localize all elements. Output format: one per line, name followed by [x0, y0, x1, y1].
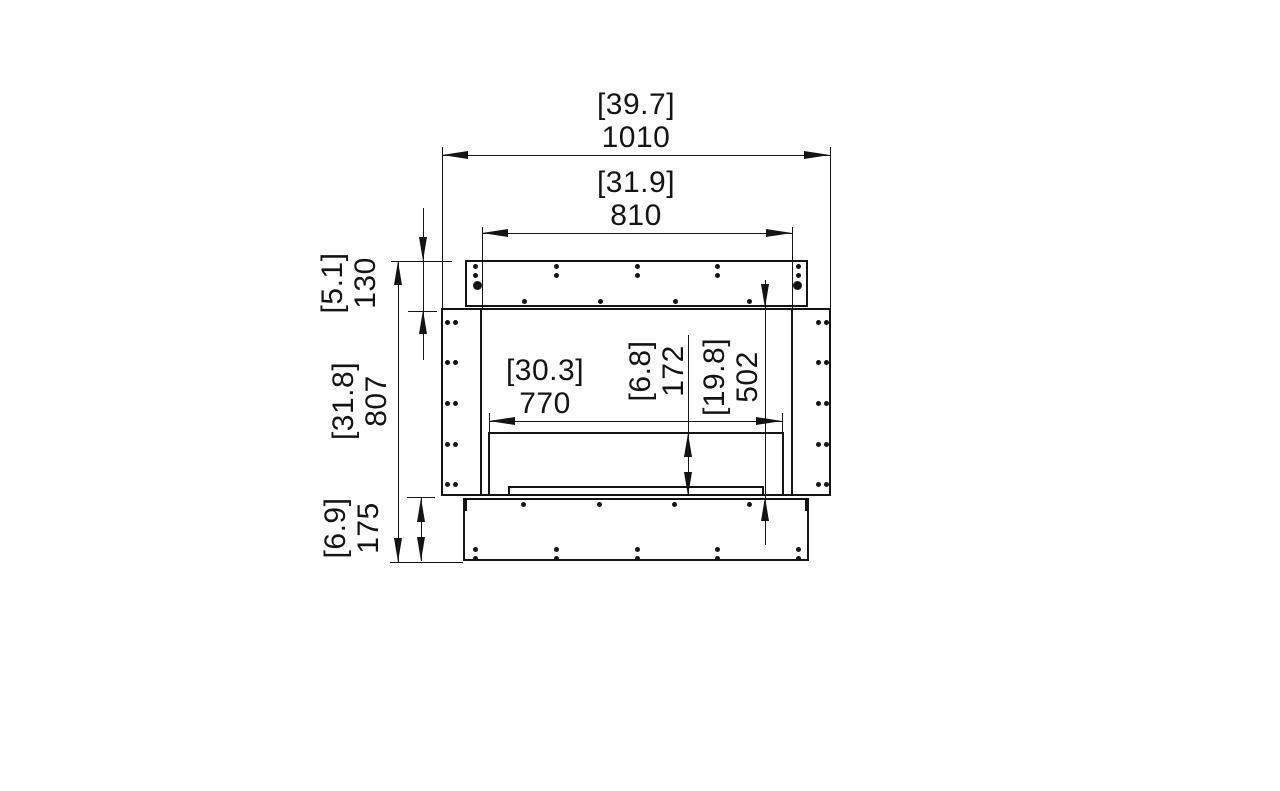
flange-corner-step — [805, 498, 808, 511]
flange-corner-step — [464, 498, 467, 511]
screw-hole-dot — [635, 264, 640, 269]
screw-hole-dot — [445, 401, 450, 406]
dim-overall-height-in: [31.8] — [327, 346, 360, 456]
screw-hole-dot — [445, 360, 450, 365]
dim-label-opening-height: [6.8] 172 — [624, 316, 690, 426]
dim-body-height-in: [19.8] — [698, 322, 731, 432]
screw-hole-dot — [473, 281, 482, 290]
screw-hole-dot — [824, 442, 829, 447]
screw-hole-dot — [554, 547, 559, 552]
dim-opening-width-in: [30.3] — [445, 354, 645, 387]
screw-hole-dot — [816, 482, 821, 487]
dim-label-overall-width: [39.7] 1010 — [536, 88, 736, 154]
screw-hole-dot — [816, 442, 821, 447]
dim-flange-width-mm: 810 — [536, 199, 736, 232]
screw-hole-dot — [635, 547, 640, 552]
screw-hole-dot — [597, 502, 602, 507]
screw-hole-dot — [473, 556, 478, 561]
dim-line-flange-width — [482, 233, 792, 234]
screw-hole-dot — [715, 547, 720, 552]
screw-hole-dot — [824, 320, 829, 325]
dim-bottom-flange-height-in: [6.9] — [319, 473, 352, 583]
dim-body-height-mm: 502 — [731, 322, 764, 432]
screw-hole-dot — [453, 442, 458, 447]
arrowhead — [766, 229, 792, 237]
screw-hole-dot — [453, 401, 458, 406]
extension-line — [792, 227, 793, 308]
arrowhead — [419, 310, 427, 334]
dim-overall-width-in: [39.7] — [536, 88, 736, 121]
screw-hole-dot — [522, 299, 527, 304]
extension-tick — [782, 413, 783, 432]
screw-hole-dot — [796, 547, 801, 552]
arrowhead — [761, 284, 769, 308]
extension-line — [482, 227, 483, 308]
arrowhead — [394, 538, 402, 562]
arrowhead — [417, 537, 425, 561]
arrowhead — [394, 261, 402, 285]
dim-top-flange-height-in: [5.1] — [316, 228, 349, 338]
screw-hole-dot — [824, 360, 829, 365]
arrowhead — [684, 472, 692, 496]
dim-overall-height-mm: 807 — [360, 346, 393, 456]
screw-hole-dot — [445, 320, 450, 325]
right-panel-inner-edge — [791, 309, 793, 496]
extension-tick — [390, 562, 463, 563]
screw-hole-dot — [521, 502, 526, 507]
technical-drawing-canvas: [39.7] 1010 [31.9] 810 [30.3] 770 [5.1] … — [0, 0, 1280, 791]
dim-label-overall-height: [31.8] 807 — [327, 346, 393, 456]
dim-label-flange-width: [31.9] 810 — [536, 166, 736, 232]
arrowhead — [417, 498, 425, 522]
dim-opening-height-mm: 172 — [657, 316, 690, 426]
screw-hole-dot — [453, 360, 458, 365]
dim-flange-width-in: [31.9] — [536, 166, 736, 199]
screw-hole-dot — [473, 547, 478, 552]
screw-hole-dot — [796, 264, 801, 269]
screw-hole-dot — [747, 502, 752, 507]
burner-tray-stub — [508, 486, 510, 496]
arrowhead — [684, 433, 692, 457]
burner-tray-line — [508, 486, 764, 488]
dim-line-overall-height — [398, 261, 399, 562]
arrowhead — [482, 229, 508, 237]
dim-overall-width-mm: 1010 — [536, 121, 736, 154]
dim-label-bottom-flange-height: [6.9] 175 — [319, 473, 385, 583]
screw-hole-dot — [824, 401, 829, 406]
screw-hole-dot — [554, 273, 559, 278]
arrowhead — [442, 151, 468, 159]
screw-hole-dot — [816, 401, 821, 406]
bottom-flange-outline — [463, 498, 809, 561]
screw-hole-dot — [473, 273, 478, 278]
screw-hole-dot — [453, 482, 458, 487]
extension-line — [830, 147, 831, 308]
dim-top-flange-height-mm: 130 — [349, 228, 382, 338]
dim-label-top-flange-height: [5.1] 130 — [316, 228, 382, 338]
screw-hole-dot — [635, 556, 640, 561]
dim-line-overall-width — [442, 155, 830, 156]
screw-hole-dot — [715, 273, 720, 278]
screw-hole-dot — [445, 482, 450, 487]
screw-hole-dot — [824, 482, 829, 487]
dim-opening-width-mm: 770 — [445, 387, 645, 420]
screw-hole-dot — [816, 360, 821, 365]
screw-hole-dot — [796, 273, 801, 278]
screw-hole-dot — [715, 556, 720, 561]
dim-line-top-flange-height — [423, 208, 424, 360]
screw-hole-dot — [473, 264, 478, 269]
screw-hole-dot — [453, 320, 458, 325]
dim-bottom-flange-height-mm: 175 — [352, 473, 385, 583]
dim-label-body-height: [19.8] 502 — [698, 322, 764, 432]
screw-hole-dot — [673, 299, 678, 304]
screw-hole-dot — [672, 502, 677, 507]
dim-opening-height-in: [6.8] — [624, 316, 657, 426]
screw-hole-dot — [793, 281, 802, 290]
arrowhead — [761, 497, 769, 521]
screw-hole-dot — [715, 264, 720, 269]
dim-label-opening-width: [30.3] 770 — [445, 354, 645, 420]
arrowhead — [419, 237, 427, 261]
screw-hole-dot — [747, 299, 752, 304]
screw-hole-dot — [796, 556, 801, 561]
screw-hole-dot — [445, 442, 450, 447]
screw-hole-dot — [554, 556, 559, 561]
screw-hole-dot — [816, 320, 821, 325]
burner-tray-stub — [762, 486, 764, 496]
screw-hole-dot — [598, 299, 603, 304]
arrowhead — [804, 151, 830, 159]
screw-hole-dot — [554, 264, 559, 269]
screw-hole-dot — [635, 273, 640, 278]
extension-line — [442, 147, 443, 308]
